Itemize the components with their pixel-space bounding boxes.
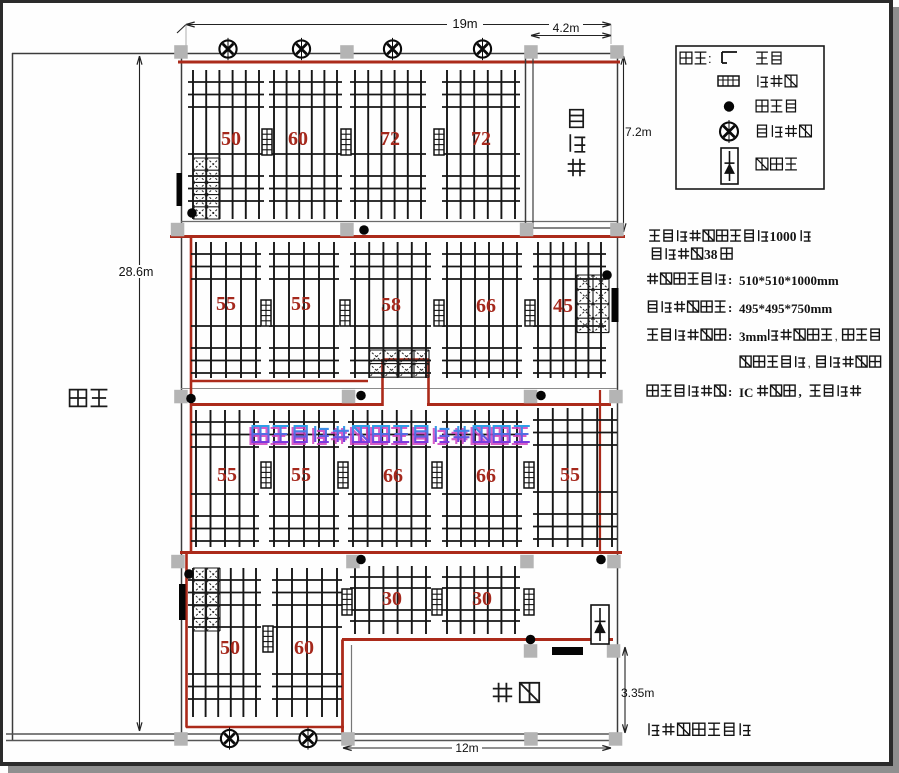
svg-text:60: 60: [294, 637, 314, 659]
svg-text:55: 55: [291, 464, 311, 486]
svg-text:,: ,: [799, 384, 802, 399]
svg-text:55: 55: [217, 464, 237, 486]
svg-text:50: 50: [221, 128, 241, 150]
svg-text:IC: IC: [739, 385, 753, 400]
svg-text:,: ,: [808, 356, 811, 370]
svg-text:30: 30: [382, 588, 402, 610]
svg-text:72: 72: [471, 128, 491, 150]
svg-text:3mm: 3mm: [739, 329, 767, 344]
svg-text:7.2m: 7.2m: [625, 125, 652, 139]
svg-text:,: ,: [835, 329, 838, 343]
svg-text::: :: [728, 272, 732, 287]
svg-text:12m: 12m: [455, 741, 478, 755]
svg-text:60: 60: [288, 128, 308, 150]
svg-text:58: 58: [381, 294, 401, 316]
svg-text:72: 72: [380, 128, 400, 150]
svg-text:3.35m: 3.35m: [621, 686, 654, 700]
svg-text:55: 55: [560, 464, 580, 486]
svg-text:66: 66: [383, 465, 403, 487]
svg-text:510*510*1000mm: 510*510*1000mm: [739, 273, 839, 288]
svg-text:30: 30: [472, 588, 492, 610]
svg-text::: :: [728, 328, 732, 343]
svg-text:28.6m: 28.6m: [119, 265, 154, 279]
svg-text::: :: [708, 51, 712, 66]
svg-text:55: 55: [216, 293, 236, 315]
svg-text:19m: 19m: [452, 16, 477, 31]
svg-text:45: 45: [553, 295, 573, 317]
svg-text:66: 66: [476, 295, 496, 317]
svg-text:55: 55: [291, 293, 311, 315]
svg-text::: :: [728, 384, 732, 399]
svg-text:4.2m: 4.2m: [553, 21, 580, 35]
svg-text:495*495*750mm: 495*495*750mm: [739, 301, 832, 316]
svg-text:38: 38: [704, 247, 718, 262]
svg-text::: :: [728, 300, 732, 315]
svg-text:66: 66: [476, 465, 496, 487]
svg-text:50: 50: [220, 637, 240, 659]
svg-text:1000: 1000: [770, 229, 797, 244]
